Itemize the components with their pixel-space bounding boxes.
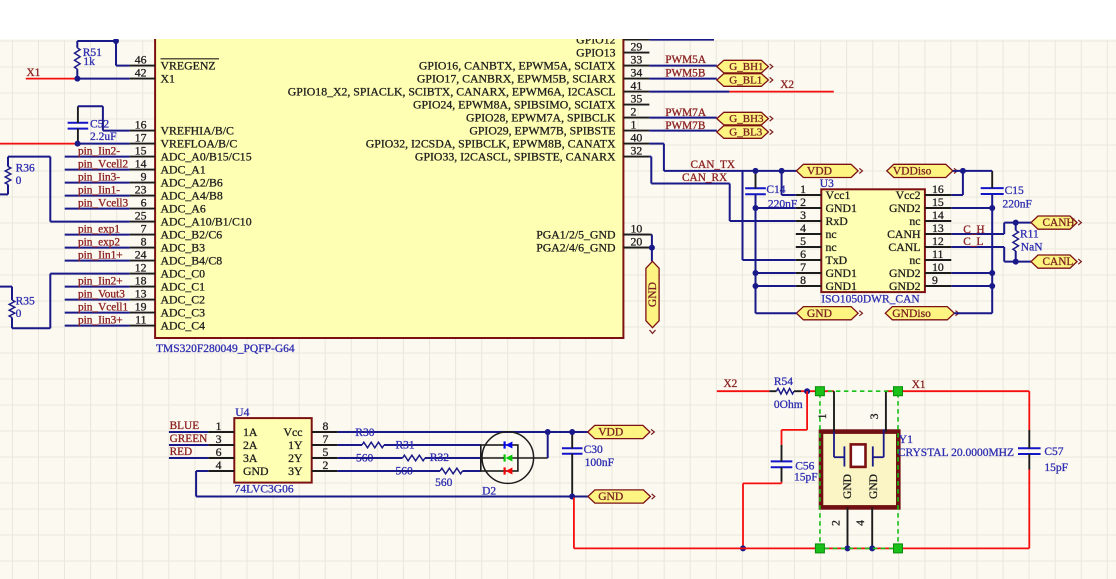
svg-text:G_BL3: G_BL3 (729, 127, 763, 139)
svg-text:2: 2 (800, 195, 806, 209)
svg-text:GND2: GND2 (889, 266, 921, 280)
svg-text:13: 13 (932, 221, 944, 235)
svg-text:Vcc1: Vcc1 (826, 188, 851, 202)
svg-text:pin_Iin3+: pin_Iin3+ (78, 314, 123, 326)
svg-text:ADC_A0/B15/C15: ADC_A0/B15/C15 (161, 150, 252, 164)
svg-text:pin_Iin1-: pin_Iin1- (78, 184, 120, 196)
svg-text:1Y: 1Y (288, 438, 303, 452)
svg-text:CANH: CANH (1043, 217, 1075, 229)
svg-text:C56: C56 (795, 460, 814, 472)
svg-text:8: 8 (323, 419, 329, 433)
svg-text:40: 40 (631, 131, 643, 145)
svg-text:10: 10 (631, 222, 643, 236)
svg-text:9: 9 (141, 170, 147, 184)
svg-text:GND1: GND1 (826, 266, 858, 280)
svg-text:C57: C57 (1044, 446, 1063, 458)
svg-text:16: 16 (932, 182, 944, 196)
svg-text:R11: R11 (1020, 228, 1039, 240)
svg-text:PGA2/4/6_GND: PGA2/4/6_GND (536, 241, 616, 255)
svg-text:ADC_A10/B1/C10: ADC_A10/B1/C10 (161, 215, 252, 229)
svg-text:X2: X2 (780, 79, 794, 91)
svg-text:GPIO16, CANBTX, EPWM5A, SCIATX: GPIO16, CANBTX, EPWM5A, SCIATX (419, 59, 616, 73)
svg-text:6: 6 (216, 445, 222, 459)
svg-text:3: 3 (869, 413, 881, 419)
svg-text:X1: X1 (912, 379, 926, 391)
svg-text:PWM7A: PWM7A (665, 107, 707, 119)
svg-text:3: 3 (216, 432, 222, 446)
svg-text:3Y: 3Y (288, 464, 303, 478)
svg-text:pin_Iin2-: pin_Iin2- (78, 145, 120, 157)
svg-text:ADC_C4: ADC_C4 (161, 319, 206, 333)
svg-text:GPIO18_X2, SPIACLK, SCIBTX, CA: GPIO18_X2, SPIACLK, SCIBTX, CANARX, EPWM… (288, 85, 616, 99)
svg-text:9: 9 (932, 273, 938, 287)
svg-text:GPIO32, I2CSDA, SPIBCLK, EPWM8: GPIO32, I2CSDA, SPIBCLK, EPWM8B, CANATX (366, 137, 616, 151)
svg-text:74LVC3G06: 74LVC3G06 (235, 484, 294, 496)
svg-text:nc: nc (826, 240, 837, 254)
svg-text:GPIO13: GPIO13 (576, 46, 615, 60)
svg-text:2A: 2A (243, 438, 258, 452)
svg-text:CAN_TX: CAN_TX (691, 159, 736, 171)
svg-text:34: 34 (631, 66, 643, 80)
svg-text:1k: 1k (83, 56, 95, 68)
svg-text:R54: R54 (774, 376, 793, 388)
svg-text:pin_Vcell3: pin_Vcell3 (78, 197, 129, 209)
svg-text:1A: 1A (243, 425, 258, 439)
svg-text:C52: C52 (90, 118, 109, 130)
svg-text:0: 0 (16, 175, 22, 187)
svg-text:PGA1/2/5_GND: PGA1/2/5_GND (536, 228, 616, 242)
svg-text:GNDiso: GNDiso (892, 307, 931, 320)
svg-text:12: 12 (932, 234, 944, 248)
svg-text:2: 2 (831, 520, 843, 526)
svg-text:pin_exp1: pin_exp1 (78, 223, 120, 235)
svg-text:pin_Vcell1: pin_Vcell1 (78, 301, 128, 313)
svg-text:CANL: CANL (888, 240, 920, 254)
svg-text:GND: GND (868, 474, 880, 499)
svg-text:GND2: GND2 (889, 279, 921, 293)
svg-text:13: 13 (135, 287, 147, 301)
svg-text:10: 10 (932, 260, 944, 274)
svg-text:R36: R36 (16, 163, 35, 175)
svg-text:NaN: NaN (1021, 242, 1043, 254)
svg-text:VDDiso: VDDiso (893, 165, 932, 178)
svg-text:8: 8 (141, 235, 147, 249)
svg-text:2: 2 (323, 458, 329, 472)
svg-text:41: 41 (631, 79, 643, 93)
svg-text:pin_Iin2+: pin_Iin2+ (78, 275, 123, 287)
svg-text:6: 6 (141, 196, 147, 210)
svg-text:nc: nc (826, 227, 837, 241)
svg-text:Vcc2: Vcc2 (896, 188, 921, 202)
svg-text:C_L: C_L (963, 236, 983, 248)
svg-text:C_H: C_H (963, 224, 984, 236)
svg-text:GND: GND (243, 464, 269, 478)
svg-text:42: 42 (135, 66, 147, 80)
svg-text:2: 2 (631, 105, 637, 119)
svg-text:33: 33 (631, 53, 643, 67)
svg-text:nc: nc (909, 253, 920, 267)
svg-text:ADC_A2/B6: ADC_A2/B6 (161, 176, 223, 190)
svg-text:ADC_C2: ADC_C2 (161, 293, 206, 307)
svg-text:GPIO29, EPWM7B, SPIBSTE: GPIO29, EPWM7B, SPIBSTE (469, 124, 615, 138)
svg-text:4: 4 (855, 520, 867, 526)
svg-text:ISO1050DWR_CAN: ISO1050DWR_CAN (821, 294, 920, 306)
svg-text:15: 15 (932, 195, 944, 209)
svg-text:GND1: GND1 (826, 201, 858, 215)
svg-text:GND: GND (807, 307, 832, 320)
svg-text:20: 20 (631, 235, 643, 249)
svg-text:220nF: 220nF (1003, 199, 1032, 211)
svg-text:Y1: Y1 (899, 434, 913, 446)
svg-text:G_BL1: G_BL1 (729, 75, 762, 87)
svg-text:X1: X1 (161, 72, 176, 86)
svg-text:ADC_C0: ADC_C0 (161, 267, 206, 281)
svg-text:pin_Vout3: pin_Vout3 (78, 288, 125, 300)
svg-text:4: 4 (216, 458, 222, 472)
svg-text:C30: C30 (584, 444, 603, 456)
svg-text:15pF: 15pF (1044, 462, 1068, 474)
svg-text:CRYSTAL 20.0000MHZ: CRYSTAL 20.0000MHZ (898, 447, 1014, 459)
svg-text:5: 5 (800, 234, 806, 248)
svg-text:16: 16 (135, 118, 147, 132)
svg-text:TMS320F280049_PQFP-G64: TMS320F280049_PQFP-G64 (156, 343, 295, 355)
svg-text:GPIO33, I2CASCL, SPIBSTE, CANA: GPIO33, I2CASCL, SPIBSTE, CANARX (415, 150, 616, 164)
svg-text:pin_Iin1+: pin_Iin1+ (78, 249, 123, 261)
svg-text:GND1: GND1 (826, 279, 858, 293)
svg-text:ADC_B4/C8: ADC_B4/C8 (161, 254, 223, 268)
svg-text:PWM5B: PWM5B (665, 67, 705, 79)
svg-text:Vcc: Vcc (284, 425, 303, 439)
svg-text:ADC_C3: ADC_C3 (161, 306, 206, 320)
svg-text:6: 6 (800, 247, 806, 261)
svg-text:1: 1 (817, 413, 829, 419)
svg-text:24: 24 (135, 248, 147, 262)
svg-text:G_BH1: G_BH1 (729, 61, 763, 73)
svg-text:1: 1 (216, 419, 222, 433)
svg-text:0Ohm: 0Ohm (774, 399, 803, 411)
svg-text:0: 0 (16, 308, 22, 320)
svg-text:X1: X1 (27, 67, 41, 79)
svg-text:VREFHIA/B/C: VREFHIA/B/C (161, 124, 235, 138)
svg-text:CANL: CANL (1043, 256, 1074, 268)
svg-text:23: 23 (135, 183, 147, 197)
svg-text:3: 3 (800, 208, 806, 222)
svg-text:2Y: 2Y (288, 451, 303, 465)
svg-text:R30: R30 (355, 427, 374, 439)
svg-text:TxD: TxD (826, 253, 848, 267)
svg-text:GND: GND (598, 490, 623, 503)
svg-text:8: 8 (800, 273, 806, 287)
svg-text:R31: R31 (396, 440, 415, 452)
svg-text:C15: C15 (1005, 185, 1024, 197)
svg-text:32: 32 (631, 144, 643, 158)
svg-text:RxD: RxD (826, 214, 849, 228)
svg-text:GND2: GND2 (889, 201, 921, 215)
svg-text:GND: GND (646, 282, 659, 307)
svg-text:3A: 3A (243, 451, 258, 465)
svg-text:X2: X2 (724, 378, 738, 390)
svg-text:15: 15 (135, 144, 147, 158)
svg-text:7: 7 (141, 222, 147, 236)
svg-text:560: 560 (435, 477, 453, 489)
svg-text:VREGENZ: VREGENZ (161, 59, 216, 73)
svg-text:G_BH3: G_BH3 (729, 113, 764, 125)
svg-text:VDD: VDD (598, 426, 623, 439)
svg-text:PWM7B: PWM7B (665, 120, 705, 132)
svg-text:ADC_B2/C6: ADC_B2/C6 (161, 228, 223, 242)
svg-text:GPIO28, EPWM7A, SPIBCLK: GPIO28, EPWM7A, SPIBCLK (466, 111, 616, 125)
svg-text:ADC_A4/B8: ADC_A4/B8 (161, 189, 223, 203)
svg-text:RED: RED (170, 446, 193, 458)
svg-text:D2: D2 (482, 486, 496, 498)
svg-text:ADC_C1: ADC_C1 (161, 280, 206, 294)
svg-text:7: 7 (800, 260, 806, 274)
svg-text:BLUE: BLUE (170, 420, 200, 432)
svg-text:pin_Iin3-: pin_Iin3- (78, 171, 120, 183)
svg-text:17: 17 (135, 131, 147, 145)
svg-text:14: 14 (135, 157, 147, 171)
svg-text:pin_Vcell2: pin_Vcell2 (78, 158, 129, 170)
svg-text:14: 14 (932, 208, 944, 222)
svg-text:12: 12 (135, 261, 147, 275)
svg-text:29: 29 (631, 40, 643, 54)
svg-text:19: 19 (135, 300, 147, 314)
svg-text:CAN_RX: CAN_RX (682, 172, 727, 184)
svg-text:4: 4 (800, 221, 806, 235)
svg-text:GPIO24, EPWM8A, SPIBSIMO, SCIA: GPIO24, EPWM8A, SPIBSIMO, SCIATX (413, 98, 616, 112)
svg-text:PWM5A: PWM5A (665, 54, 707, 66)
svg-text:18: 18 (135, 274, 147, 288)
svg-text:11: 11 (932, 247, 943, 261)
svg-text:25: 25 (135, 209, 147, 223)
svg-text:5: 5 (323, 445, 329, 459)
svg-text:2.2uF: 2.2uF (90, 131, 117, 143)
svg-text:11: 11 (135, 313, 146, 327)
svg-text:CANH: CANH (887, 227, 921, 241)
svg-text:VREFLOA/B/C: VREFLOA/B/C (161, 137, 238, 151)
svg-text:100nF: 100nF (585, 457, 614, 469)
svg-text:ADC_A6: ADC_A6 (161, 202, 206, 216)
svg-text:nc: nc (909, 214, 920, 228)
svg-text:GND: GND (842, 474, 854, 499)
svg-text:35: 35 (631, 92, 643, 106)
svg-text:46: 46 (135, 53, 147, 67)
svg-text:pin_exp2: pin_exp2 (78, 236, 120, 248)
svg-text:ADC_A1: ADC_A1 (161, 163, 206, 177)
svg-text:GPIO17, CANBRX, EPWM5B, SCIARX: GPIO17, CANBRX, EPWM5B, SCIARX (417, 72, 616, 86)
svg-text:ADC_B3: ADC_B3 (161, 241, 206, 255)
svg-text:U4: U4 (235, 407, 249, 419)
svg-text:GREEN: GREEN (170, 433, 208, 445)
svg-text:1: 1 (631, 118, 637, 132)
svg-text:1: 1 (800, 182, 806, 196)
svg-text:R32: R32 (430, 452, 449, 464)
svg-text:7: 7 (323, 432, 329, 446)
svg-text:15pF: 15pF (794, 472, 818, 484)
svg-text:VDD: VDD (807, 165, 832, 178)
svg-text:R35: R35 (16, 295, 35, 307)
